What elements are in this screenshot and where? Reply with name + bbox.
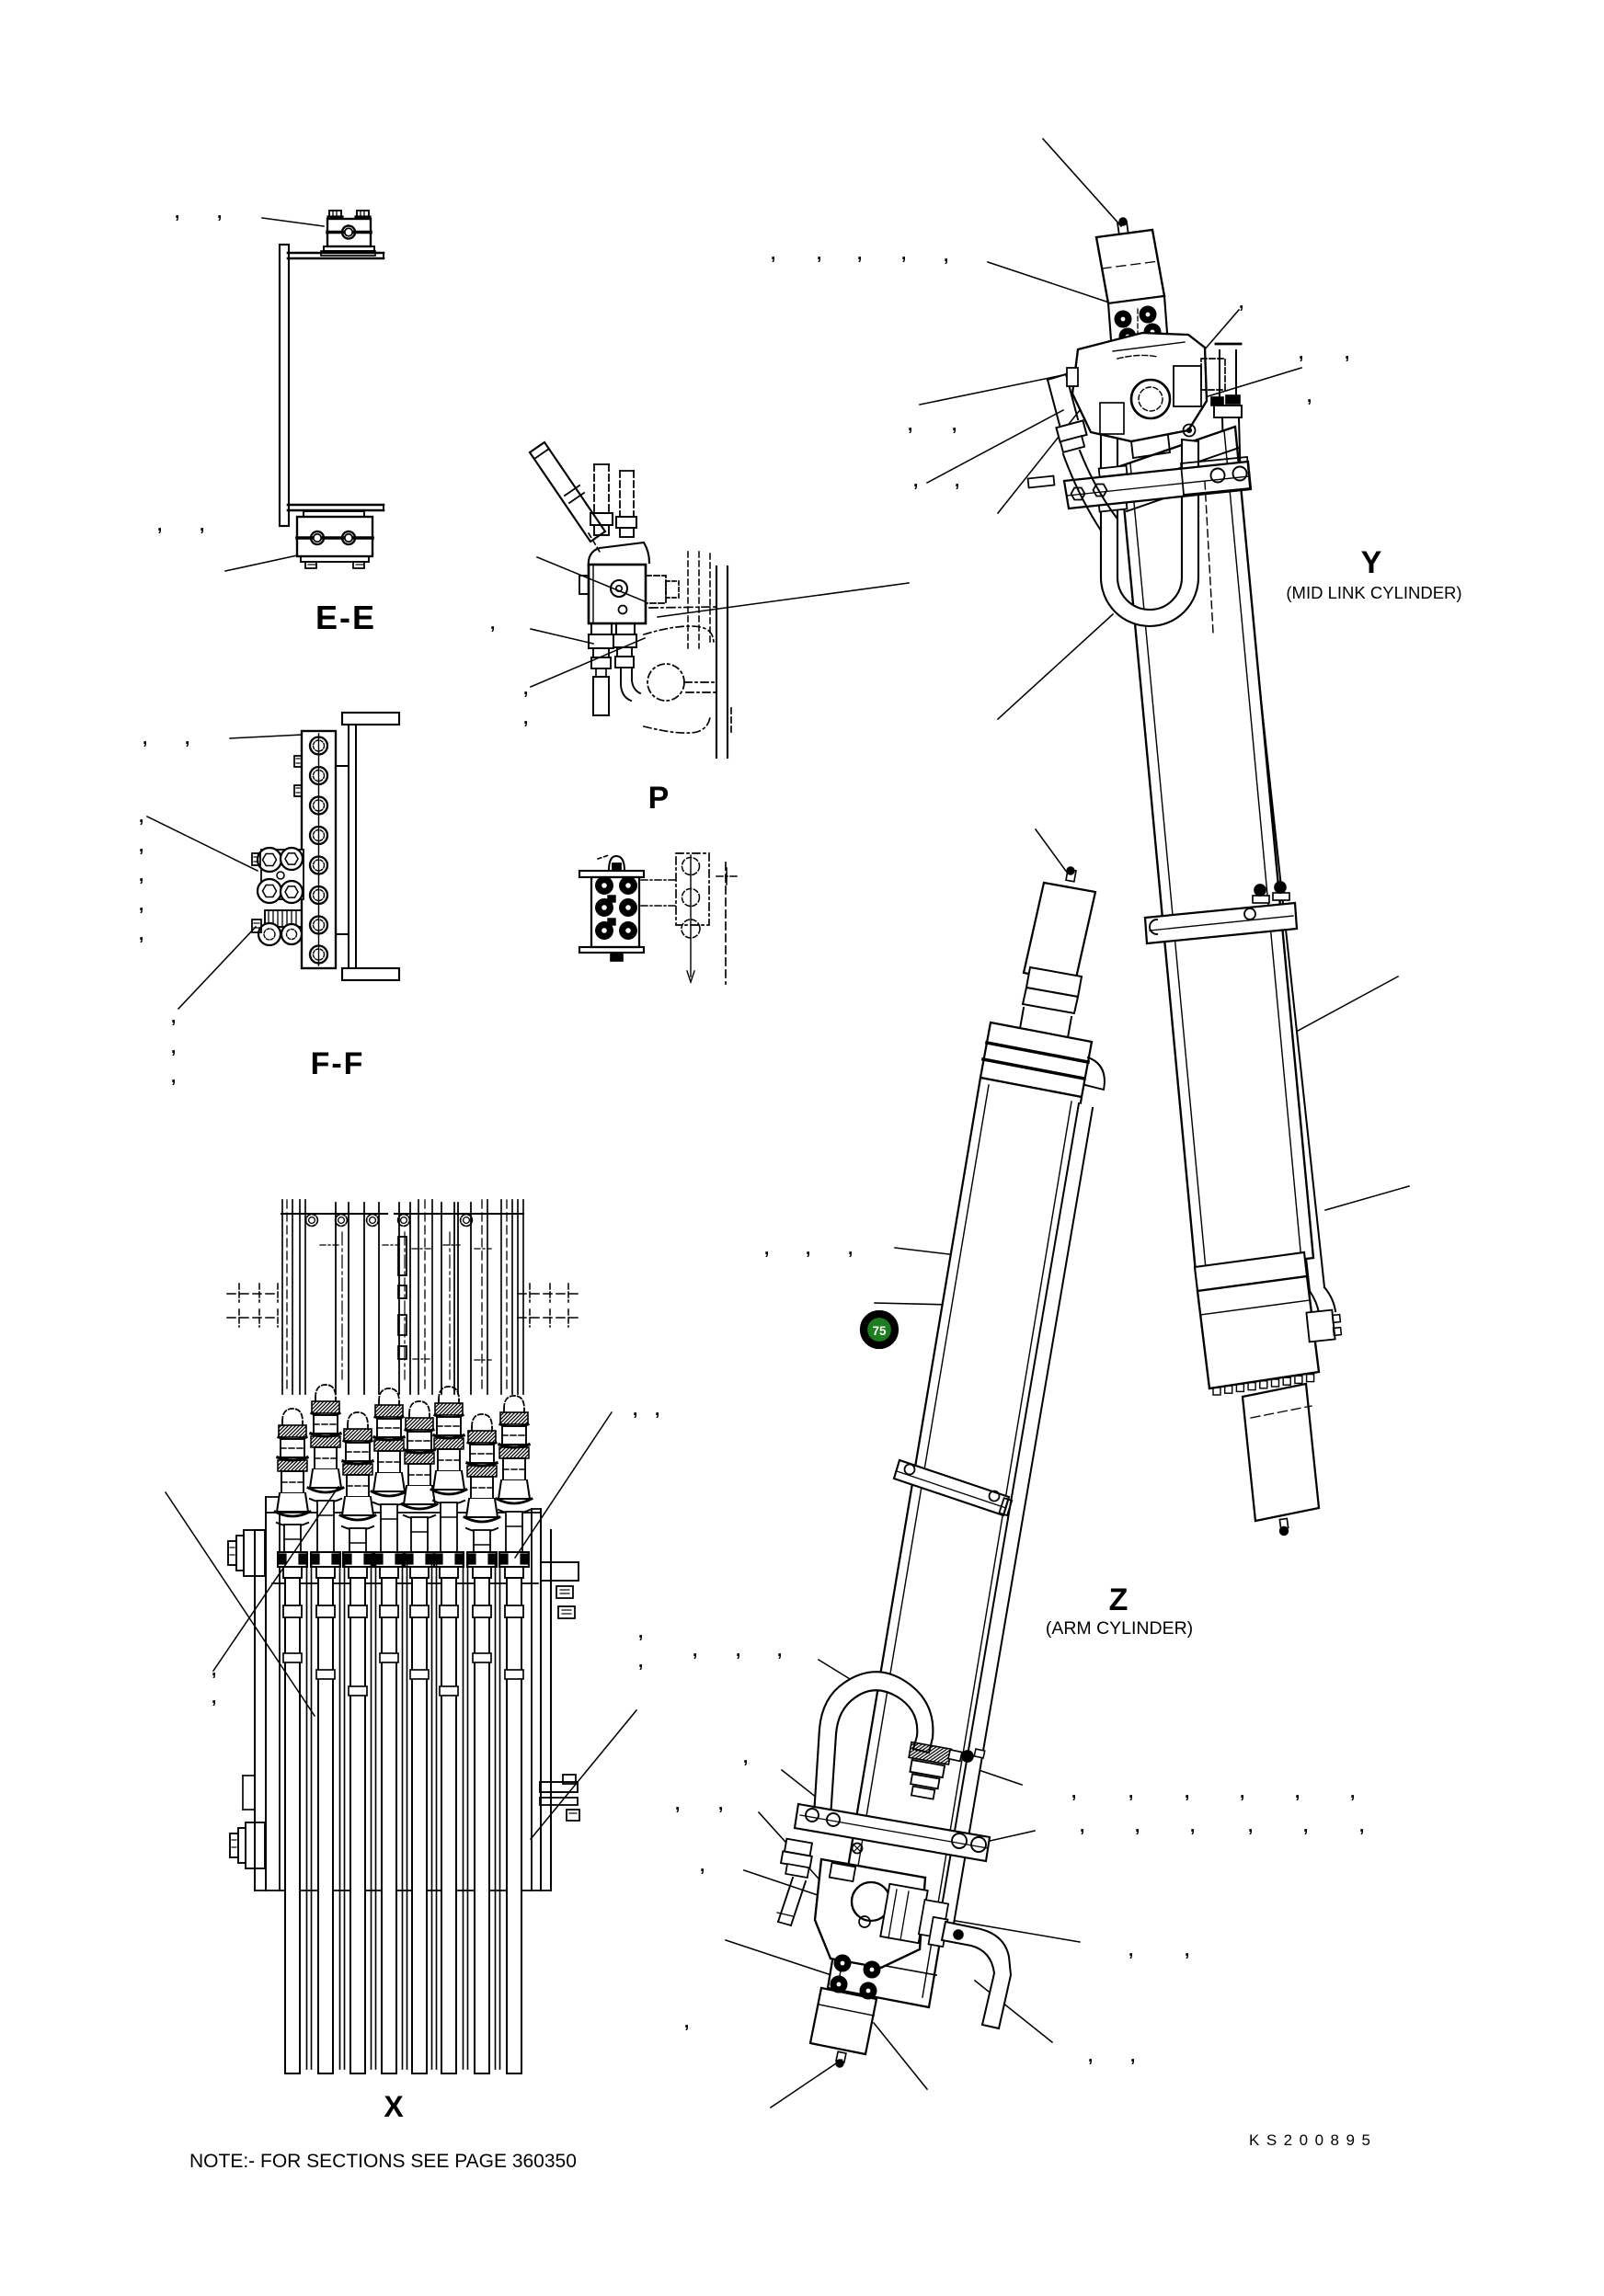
svg-text:,: , xyxy=(212,1688,216,1708)
svg-text:X: X xyxy=(384,2090,404,2123)
svg-text:,: , xyxy=(139,837,143,856)
svg-text:,: , xyxy=(200,516,204,535)
svg-text:,: , xyxy=(633,1400,637,1420)
svg-text:,: , xyxy=(1185,1941,1189,1960)
svg-text:,: , xyxy=(718,1795,723,1814)
svg-text:,: , xyxy=(857,245,862,264)
svg-text:75: 75 xyxy=(872,1324,887,1338)
svg-text:,: , xyxy=(175,203,179,223)
svg-text:,: , xyxy=(700,1856,705,1876)
svg-text:,: , xyxy=(1190,1817,1195,1836)
svg-text:,: , xyxy=(944,246,948,266)
svg-text:,: , xyxy=(139,925,143,944)
svg-text:,: , xyxy=(490,614,495,634)
svg-text:,: , xyxy=(1345,344,1349,363)
svg-text:,: , xyxy=(1185,1783,1189,1802)
svg-text:,: , xyxy=(771,245,775,264)
svg-text:,: , xyxy=(806,1239,810,1259)
svg-text:,: , xyxy=(1135,1817,1140,1836)
svg-text:E-E: E-E xyxy=(315,599,376,636)
svg-text:,: , xyxy=(817,245,821,264)
svg-text:,: , xyxy=(1350,1783,1355,1802)
svg-text:,: , xyxy=(1248,1817,1253,1836)
svg-text:,: , xyxy=(523,709,528,728)
svg-text:,: , xyxy=(157,516,162,535)
svg-text:,: , xyxy=(848,1239,853,1259)
svg-text:Z: Z xyxy=(1109,1582,1129,1617)
svg-text:,: , xyxy=(1129,1941,1133,1960)
svg-text:,: , xyxy=(693,1641,697,1661)
svg-text:,: , xyxy=(952,416,957,435)
svg-text:,: , xyxy=(1299,344,1303,363)
svg-text:,: , xyxy=(684,2013,689,2032)
svg-text:,: , xyxy=(675,1795,680,1814)
svg-text:,: , xyxy=(901,245,906,264)
svg-text:,: , xyxy=(655,1400,659,1420)
svg-text:(ARM CYLINDER): (ARM CYLINDER) xyxy=(1046,1618,1193,1639)
svg-text:,: , xyxy=(638,1652,643,1672)
svg-text:,: , xyxy=(1129,1783,1133,1802)
svg-text:F-F: F-F xyxy=(311,1046,365,1081)
svg-text:,: , xyxy=(1080,1817,1084,1836)
svg-text:,: , xyxy=(212,1661,216,1680)
svg-text:,: , xyxy=(139,866,143,885)
svg-text:,: , xyxy=(1303,1817,1308,1836)
svg-text:,: , xyxy=(171,1038,176,1057)
svg-text:,: , xyxy=(1071,1783,1076,1802)
svg-text:,: , xyxy=(1239,293,1243,313)
svg-text:,: , xyxy=(638,1623,643,1642)
svg-text:(MID LINK CYLINDER): (MID LINK CYLINDER) xyxy=(1286,583,1461,602)
svg-text:,: , xyxy=(523,680,528,699)
svg-text:,: , xyxy=(1130,2047,1135,2066)
svg-text:,: , xyxy=(143,729,147,748)
svg-text:,: , xyxy=(777,1641,782,1661)
svg-text:,: , xyxy=(171,1068,176,1087)
svg-text:,: , xyxy=(736,1641,740,1661)
svg-text:,: , xyxy=(1088,2047,1093,2066)
svg-text:,: , xyxy=(139,807,143,827)
svg-text:,: , xyxy=(913,472,918,491)
svg-text:P: P xyxy=(648,781,670,816)
svg-text:NOTE:- FOR SECTIONS SEE PAGE 3: NOTE:- FOR SECTIONS SEE PAGE 360350 xyxy=(189,2151,577,2172)
svg-text:,: , xyxy=(764,1239,769,1259)
svg-text:,: , xyxy=(185,729,189,748)
svg-text:,: , xyxy=(743,1748,748,1767)
svg-text:Y: Y xyxy=(1361,545,1382,580)
svg-text:,: , xyxy=(908,416,912,435)
svg-text:,: , xyxy=(1359,1817,1364,1836)
svg-text:,: , xyxy=(1240,1783,1244,1802)
svg-text:,: , xyxy=(1295,1783,1300,1802)
svg-text:,: , xyxy=(217,203,222,223)
svg-text:,: , xyxy=(171,1008,176,1027)
svg-text:,: , xyxy=(955,472,959,491)
svg-text:,: , xyxy=(139,896,143,915)
svg-text:,: , xyxy=(1307,387,1312,406)
svg-text:KS200895: KS200895 xyxy=(1249,2131,1377,2149)
